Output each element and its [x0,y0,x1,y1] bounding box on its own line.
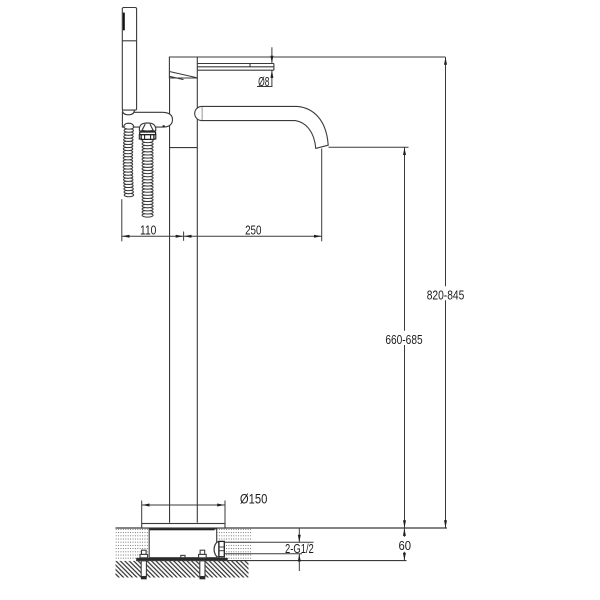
svg-text:660-685: 660-685 [385,332,422,347]
svg-text:110: 110 [140,224,156,238]
svg-text:Ø8: Ø8 [258,75,269,89]
svg-text:2-G1/2: 2-G1/2 [285,542,314,556]
svg-text:60: 60 [399,538,412,553]
svg-text:250: 250 [245,224,261,238]
svg-text:820-845: 820-845 [427,287,465,302]
svg-text:Ø150: Ø150 [240,491,268,506]
